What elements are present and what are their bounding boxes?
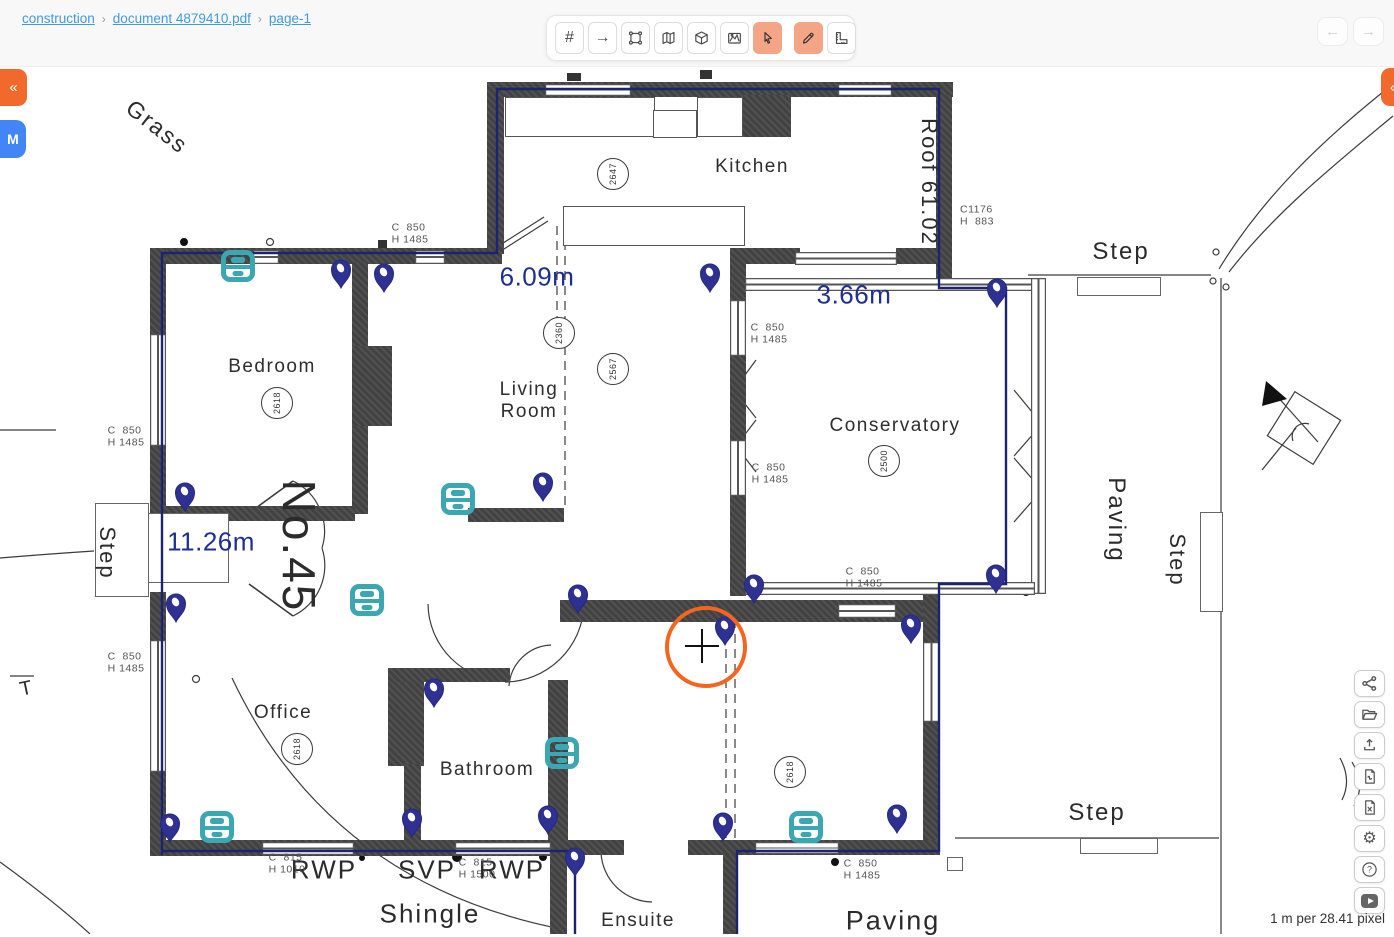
annotation-toolbar: # → [546,15,855,61]
cube-tool-button[interactable] [687,22,716,54]
location-pin[interactable] [711,810,735,847]
plan-area-label: Step [1164,533,1190,586]
upload-button[interactable] [1354,732,1385,759]
top-bar: construction›document 4879410.pdf›page-1… [0,0,1394,67]
dimension-label: C1176 H 883 [960,204,994,228]
room-label: Kitchen [715,156,789,178]
youtube-button[interactable] [1354,887,1385,914]
dimension-label: C 850 H 1485 [846,566,883,590]
svg-text:?: ? [1367,865,1372,875]
breadcrumb-separator: › [102,12,106,26]
location-pin[interactable] [158,811,182,848]
location-pin[interactable] [698,261,722,298]
location-pin[interactable] [329,257,353,294]
pin-icon [536,803,560,835]
prev-page-button[interactable]: ← [1317,17,1348,46]
perimeter-annotation[interactable] [0,0,1394,934]
box-marker-part [799,818,813,824]
box-marker[interactable] [350,584,384,616]
pin-icon [400,806,424,838]
location-pin[interactable] [400,806,424,843]
pin-icon [158,811,182,843]
box-marker-part [225,265,251,269]
location-pin[interactable] [984,562,1008,599]
open-folder-icon [1361,706,1378,723]
box-marker[interactable] [545,737,579,769]
location-pin[interactable] [899,612,923,649]
box-marker-part [231,257,245,263]
plan-area-label: Step [94,526,120,579]
m-panel-button[interactable]: M [0,120,26,158]
plan-area-label: Shingle [380,899,481,930]
room-label: Ensuite [601,910,675,932]
box-marker-part [445,498,471,502]
circled-number: 2618 [774,756,806,788]
pencil-icon [801,29,816,47]
pin-icon [329,257,353,289]
pencil-tool-button[interactable] [794,22,823,54]
location-pin[interactable] [173,480,197,517]
ruler-tool-button[interactable] [827,22,856,54]
help-button[interactable]: ? [1354,856,1385,883]
plan-area-label: No.45 [272,480,326,613]
box-marker[interactable] [789,811,823,843]
breadcrumb-link-construction[interactable]: construction [22,11,95,26]
breadcrumb: construction›document 4879410.pdf›page-1 [22,11,311,26]
polygon-select-tool-button[interactable] [621,22,650,54]
box-marker-part [362,605,373,610]
box-marker-part [210,818,224,824]
pin-icon [563,845,587,877]
box-marker-part [204,826,230,830]
dimension-label: C 850 H 1485 [752,462,789,486]
export-excel-button[interactable] [1354,794,1385,821]
dimension-label: C 850 H 1485 [844,858,881,882]
pin-icon [164,591,188,623]
location-pin[interactable] [536,803,560,840]
room-label: Bathroom [440,759,534,781]
location-pin[interactable] [885,802,909,839]
circled-number: 2618 [261,387,293,419]
location-pin[interactable] [372,261,396,298]
pin-icon [985,276,1009,308]
box-marker-part [549,752,575,756]
box-marker-part [233,271,244,276]
dimension-label: C 850 H 1485 [108,425,145,449]
circled-number: 2647 [597,158,629,190]
crosshair-cursor [685,629,719,663]
pin-icon [372,261,396,293]
room-label: Conservatory [830,415,961,437]
scale-label: 1 m per 28.41 pixel [1270,911,1385,926]
pin-icon [698,261,722,293]
room-label: Living Room [500,379,559,423]
plan-area-label: Paving [1102,477,1130,562]
pin-icon [742,572,766,604]
pin-icon [899,612,923,644]
location-pin[interactable] [566,582,590,619]
room-label: Bedroom [228,356,316,378]
box-marker-part [212,832,223,837]
area-chart-tool-button[interactable] [720,22,749,54]
plan-area-label: Step [1068,799,1125,827]
plan-viewer-app: { "breadcrumb":{"separator":"\u203a","it… [0,0,1394,934]
pointer-icon [760,29,775,47]
breadcrumb-link-document[interactable]: document 4879410.pdf [113,11,251,26]
pin-icon [566,582,590,614]
grid-tool-button[interactable]: # [555,22,584,54]
box-marker-part [451,490,465,496]
share-button[interactable] [1354,670,1385,697]
pdf-file-icon [1361,768,1378,785]
plan-canvas[interactable]: KitchenBedroomLiving RoomConservatoryOff… [0,0,1394,934]
room-label: Office [254,702,312,724]
polygon-select-icon [628,29,643,47]
ruler-icon [834,29,849,47]
dimension-label: C 850 H 1485 [392,222,429,246]
dimension-label: C 850 H 1485 [751,322,788,346]
plan-area-label: SVP [398,855,456,886]
box-marker[interactable] [200,811,234,843]
location-pin[interactable] [742,572,766,609]
box-marker[interactable] [221,250,255,282]
circled-number: 2500 [868,445,900,477]
arrow-tool-button[interactable]: → [588,22,617,54]
pointer-tool-button[interactable] [753,22,782,54]
right-tool-rail: ⚙ ? [1354,670,1386,914]
youtube-icon [1361,894,1378,908]
box-marker-part [453,504,464,509]
excel-file-icon [1361,799,1378,816]
location-pin[interactable] [164,591,188,628]
pin-icon [422,676,446,708]
breadcrumb-link-page[interactable]: page-1 [269,11,311,26]
dimension-label: C 815 H 1010 [269,852,306,876]
dimension-label: C 850 H 1485 [108,651,145,675]
export-pdf-button[interactable] [1354,763,1385,790]
plan-area-label: Roof 61.02 [916,118,942,246]
box-marker-part [557,758,568,763]
pin-icon [984,562,1008,594]
box-marker-part [360,591,374,597]
pin-icon [885,802,909,834]
measurement-annotation[interactable]: 6.09m [500,262,575,293]
circled-number: 2618 [281,733,313,765]
cube-icon [694,29,709,47]
area-chart-icon [727,29,742,47]
collapse-left-panel-button[interactable]: « [0,69,27,106]
pin-icon [531,470,555,502]
pin-icon [173,480,197,512]
help-icon: ? [1361,861,1378,878]
next-page-button[interactable]: → [1353,17,1384,46]
upload-icon [1361,737,1378,754]
settings-button[interactable]: ⚙ [1354,825,1385,852]
circled-number: 2360 [543,317,575,349]
breadcrumb-separator: › [258,12,262,26]
measurement-annotation[interactable]: 11.26m [167,527,255,558]
dimension-label: C 815 H 1500 [459,857,496,881]
location-pin[interactable] [563,845,587,882]
gear-icon: ⚙ [1362,831,1376,847]
collapse-right-panel-button[interactable]: « [1381,68,1394,106]
map-tool-button[interactable] [654,22,683,54]
location-pin[interactable] [422,676,446,713]
plan-area-label: Step [1092,238,1149,266]
location-pin[interactable] [531,470,555,507]
pin-icon [711,810,735,842]
box-marker-part [793,826,819,830]
box-marker[interactable] [441,483,475,515]
page-nav: ← → [1317,17,1384,46]
box-marker-part [555,744,569,750]
box-marker-part [354,599,380,603]
open-folder-button[interactable] [1354,701,1385,728]
share-icon [1361,675,1378,692]
box-marker-part [801,832,812,837]
measurement-annotation[interactable]: 3.66m [817,280,892,311]
plan-area-label: Paving [846,906,941,937]
circled-number: 2567 [597,353,629,385]
location-pin[interactable] [985,276,1009,313]
map-icon [661,29,676,47]
